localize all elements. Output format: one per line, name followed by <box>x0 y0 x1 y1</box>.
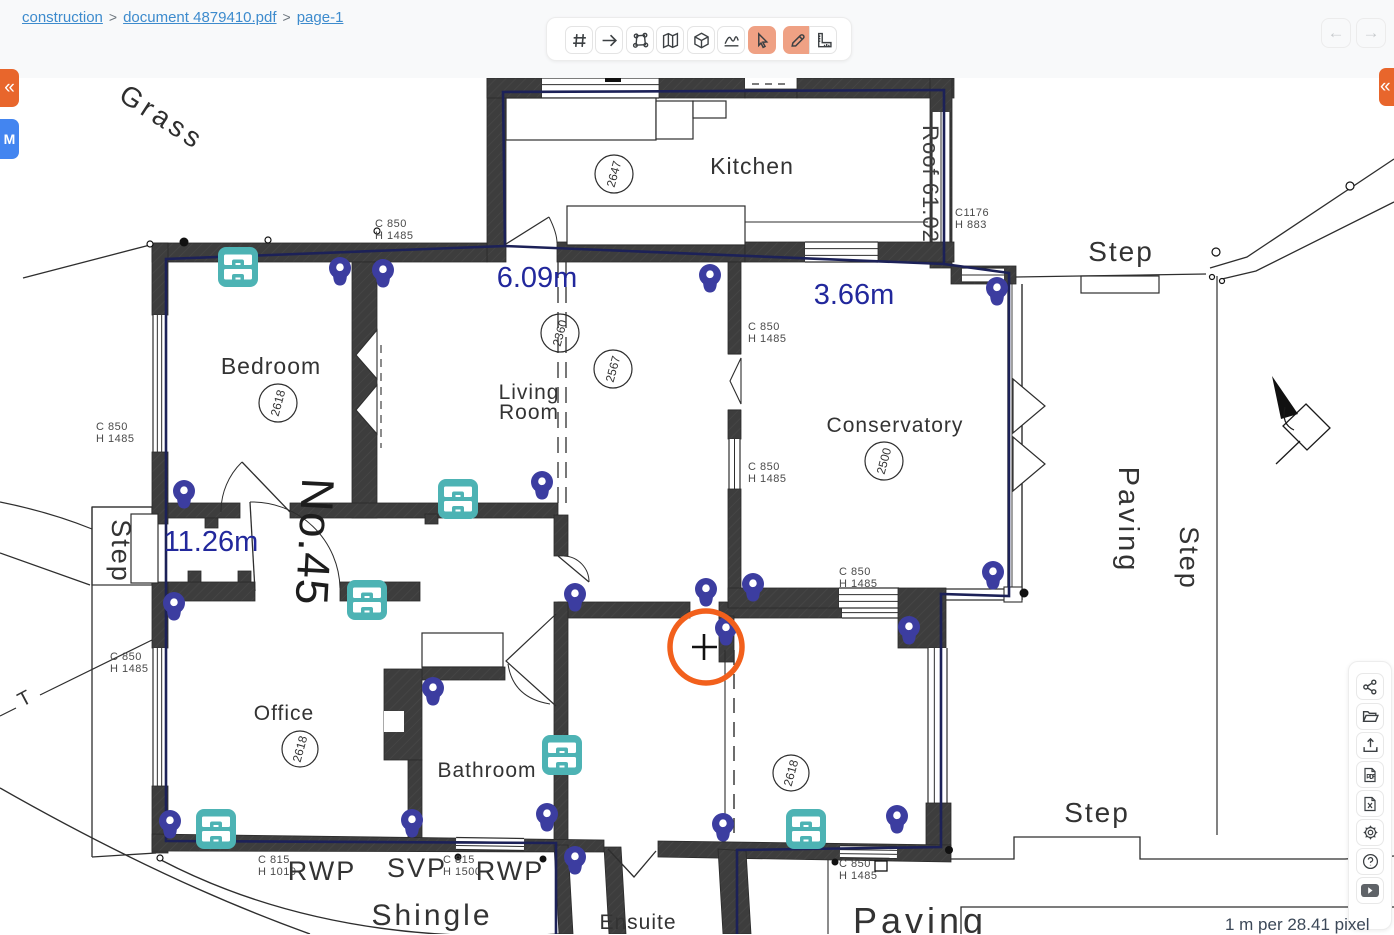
svg-text:Grass: Grass <box>114 78 210 156</box>
svg-text:H 1485: H 1485 <box>839 578 877 590</box>
svg-text:H 1485: H 1485 <box>839 870 877 882</box>
svg-text:Paving: Paving <box>853 900 987 934</box>
svg-text:H 883: H 883 <box>955 219 987 231</box>
svg-text:H 1485: H 1485 <box>110 663 148 675</box>
svg-text:Ensuite: Ensuite <box>599 911 676 934</box>
svg-text:11.26m: 11.26m <box>164 526 259 558</box>
svg-text:C 815: C 815 <box>258 854 290 866</box>
svg-text:C 850: C 850 <box>748 321 780 333</box>
svg-text:2567: 2567 <box>603 354 624 384</box>
svg-text:C 850: C 850 <box>96 421 128 433</box>
svg-text:C 850: C 850 <box>110 651 142 663</box>
svg-text:Room: Room <box>499 401 559 424</box>
svg-text:Step: Step <box>1174 526 1204 590</box>
svg-text:6.09m: 6.09m <box>497 262 578 294</box>
svg-text:H 1485: H 1485 <box>748 473 786 485</box>
svg-text:C 815: C 815 <box>443 854 475 866</box>
svg-text:C 850: C 850 <box>748 461 780 473</box>
svg-text:T: T <box>14 686 36 712</box>
svg-text:H 1485: H 1485 <box>375 230 413 242</box>
svg-text:Step: Step <box>106 519 136 583</box>
svg-text:H 1485: H 1485 <box>748 333 786 345</box>
svg-text:3.66m: 3.66m <box>814 279 895 311</box>
svg-text:C 850: C 850 <box>839 858 871 870</box>
svg-text:RWP: RWP <box>476 856 545 886</box>
svg-text:C1176: C1176 <box>955 207 989 219</box>
svg-text:Shingle: Shingle <box>371 899 492 932</box>
svg-text:2647: 2647 <box>604 159 625 189</box>
svg-text:Paving: Paving <box>1112 467 1144 574</box>
svg-text:RWP: RWP <box>288 856 357 886</box>
svg-text:C 850: C 850 <box>375 218 407 230</box>
svg-text:Roof 61.02: Roof 61.02 <box>918 125 943 243</box>
svg-text:Step: Step <box>1088 236 1154 267</box>
svg-text:SVP: SVP <box>387 853 447 883</box>
svg-text:Step: Step <box>1064 797 1130 828</box>
svg-text:2618: 2618 <box>268 388 289 418</box>
svg-text:H 1485: H 1485 <box>96 433 134 445</box>
svg-text:Bathroom: Bathroom <box>437 759 536 782</box>
svg-text:Bedroom: Bedroom <box>221 353 321 379</box>
svg-text:Office: Office <box>254 702 314 725</box>
svg-text:2618: 2618 <box>781 758 802 788</box>
svg-text:2618: 2618 <box>290 734 311 764</box>
svg-text:Kitchen: Kitchen <box>710 153 794 179</box>
svg-text:2500: 2500 <box>874 446 895 476</box>
svg-text:2360: 2360 <box>550 318 571 348</box>
svg-text:No.45: No.45 <box>286 477 345 607</box>
svg-text:C 850: C 850 <box>839 566 871 578</box>
svg-text:Conservatory: Conservatory <box>827 414 964 437</box>
